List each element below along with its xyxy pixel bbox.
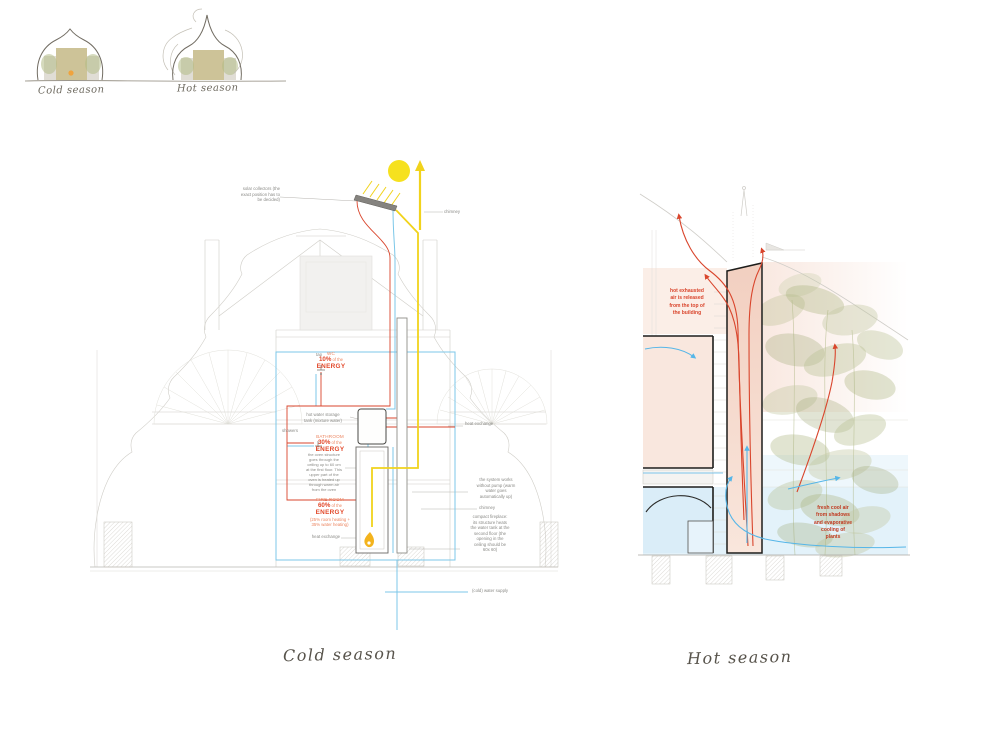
cold-season-caption: Cold season bbox=[283, 644, 398, 665]
heat-exchange-left-label: heat exchange bbox=[306, 534, 340, 540]
wc-energy-block: WC 10% of the ENERGY bbox=[305, 351, 357, 371]
sketch-ground-line bbox=[25, 81, 286, 82]
solar-collector bbox=[354, 195, 397, 211]
no-pump-note: the system works without pump (warm wate… bbox=[470, 477, 522, 499]
chimney-shaft bbox=[397, 318, 407, 553]
hot-ground-piers bbox=[638, 555, 910, 584]
fire-room-energy-block: FIRE ROOM 60% of the ENERGY (25% room he… bbox=[302, 497, 358, 528]
cold-season-sketch bbox=[37, 29, 102, 80]
sketch-hot-caption: Hot season bbox=[177, 82, 239, 94]
poster-canvas: Cold season Hot season bbox=[0, 0, 1000, 750]
ventilation-shaft bbox=[727, 263, 762, 553]
hot-season-sketch bbox=[163, 9, 242, 80]
bathroom-energy-block: BATHROOM 30% of the ENERGY bbox=[304, 434, 356, 454]
fireplace-wall-panel bbox=[300, 256, 372, 330]
gallery-slab bbox=[643, 470, 713, 484]
sun-icon bbox=[388, 160, 410, 182]
water-supply-label: (cold) water supply bbox=[472, 588, 508, 594]
chimney-exhaust-arrow bbox=[415, 160, 425, 230]
solar-collectors-note: solar collectors (the exact position has… bbox=[222, 186, 280, 203]
fire-dot-icon bbox=[68, 70, 73, 75]
chimney-lower-label: chimney bbox=[479, 505, 495, 511]
oven-note: the oven structure goes through the ceil… bbox=[301, 452, 347, 492]
cold-season-section bbox=[85, 145, 565, 640]
fireplace-note: compact fireplace: its structure heats t… bbox=[462, 514, 518, 553]
fresh-air-note: fresh cool air from shadows and evaporat… bbox=[805, 505, 861, 541]
heat-exchange-right-label: heat exchange bbox=[465, 421, 493, 427]
hot-season-section bbox=[630, 180, 915, 595]
left-fan-canopy bbox=[154, 350, 302, 424]
right-fan-canopy bbox=[437, 369, 547, 424]
lower-left-room bbox=[643, 487, 713, 553]
hot-season-caption: Hot season bbox=[687, 647, 793, 668]
exhaust-air-note: hot exhausted air is released from the t… bbox=[659, 288, 715, 317]
tank-note: hot water storage tank (mixture water) bbox=[296, 412, 350, 423]
chimney-upper-label: chimney bbox=[444, 209, 460, 215]
upper-left-room bbox=[643, 336, 713, 468]
hot-water-tank bbox=[358, 409, 386, 444]
showers-label: showers bbox=[282, 428, 298, 434]
sketch-cold-caption: Cold season bbox=[38, 84, 105, 96]
